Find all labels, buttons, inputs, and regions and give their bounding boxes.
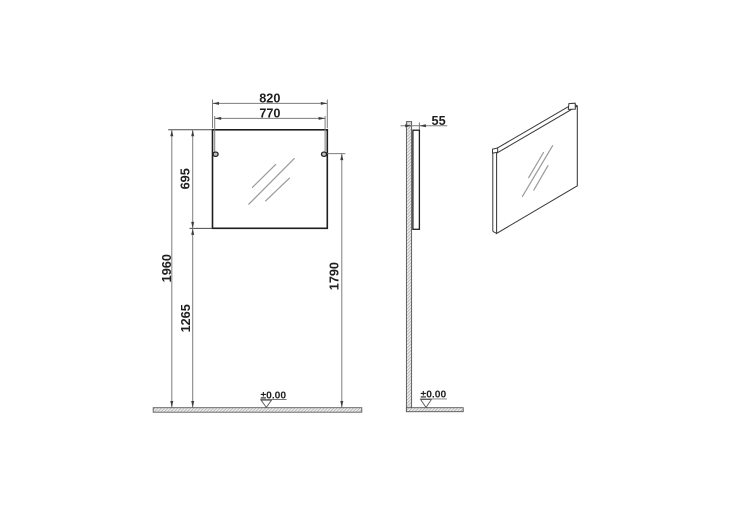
svg-text:695: 695 <box>178 168 192 189</box>
svg-text:55: 55 <box>432 114 446 128</box>
svg-text:1960: 1960 <box>160 254 174 282</box>
svg-text:770: 770 <box>259 106 280 120</box>
svg-text:1265: 1265 <box>179 304 193 332</box>
svg-text:1790: 1790 <box>328 262 342 290</box>
svg-text:820: 820 <box>259 92 280 106</box>
